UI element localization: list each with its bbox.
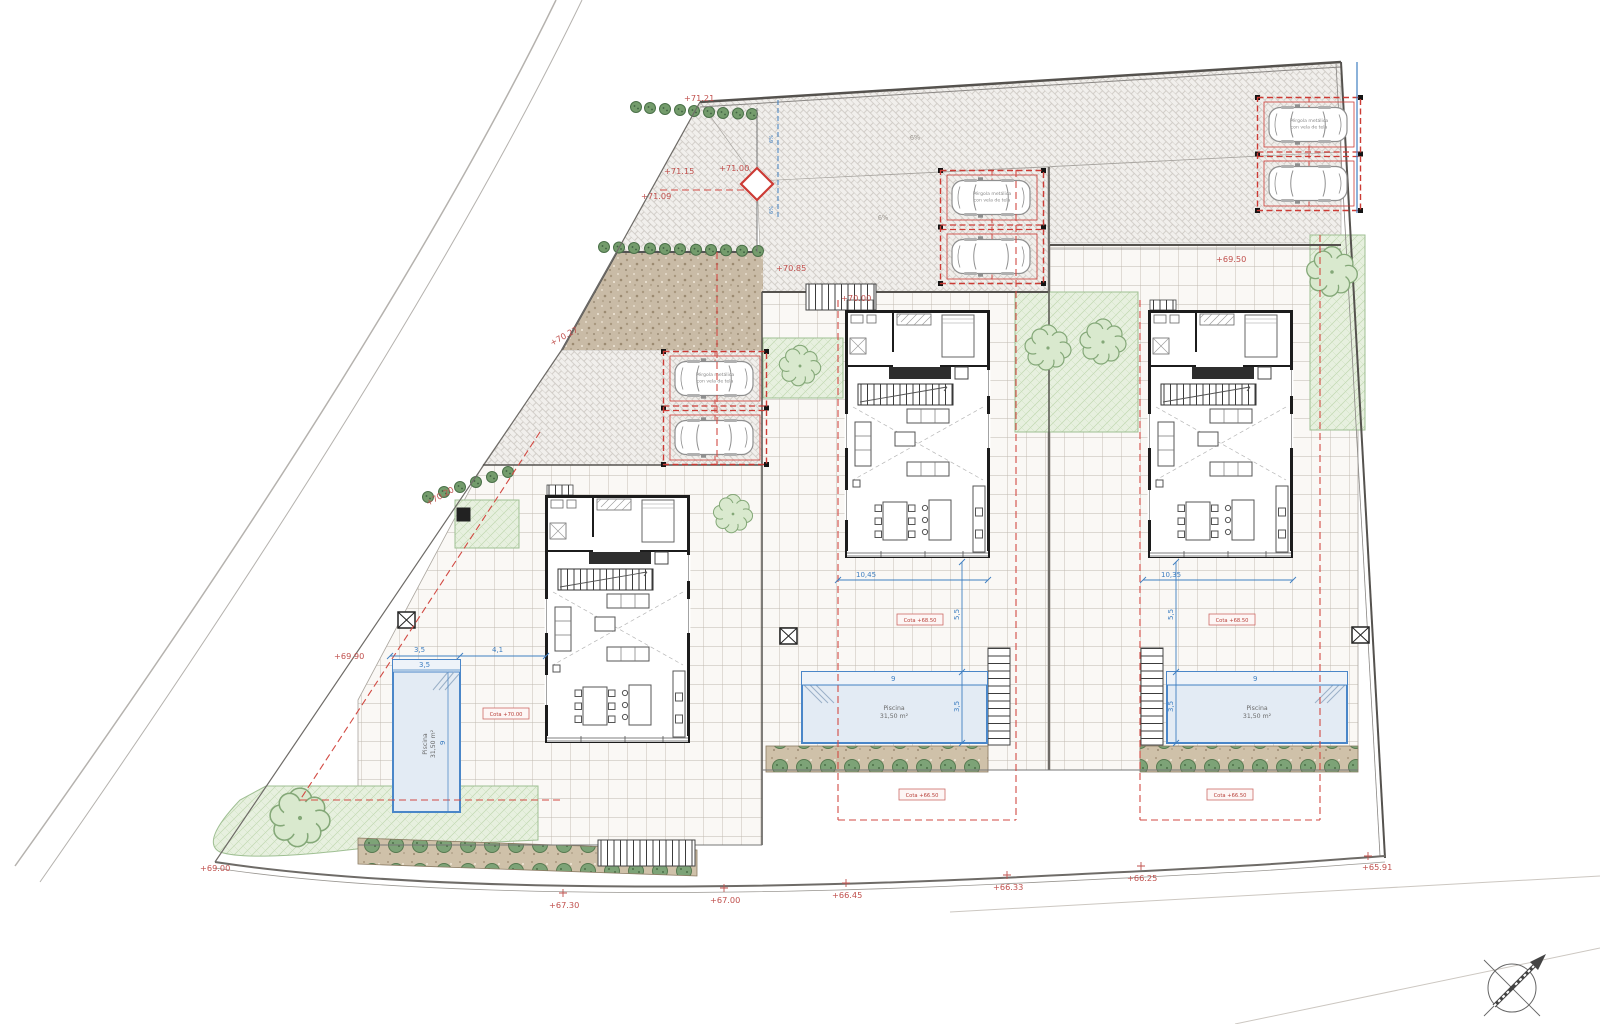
site-plan-canvas: Pérgola metálica con vela de tela — [0, 0, 1600, 1024]
villa-center — [845, 312, 991, 558]
dim-label: 3,5 — [1167, 701, 1175, 712]
dim-label: 9 — [1253, 675, 1257, 683]
dim-label: 9 — [891, 675, 895, 683]
elevation-label: +66.45 — [832, 890, 862, 900]
dim-label: 5,5 — [953, 609, 961, 620]
pool-label-line1: Piscina — [883, 705, 905, 712]
elevation-label: +71.00 — [719, 163, 749, 173]
dim-label: 9 — [439, 741, 447, 745]
dim-label: 10,35 — [1161, 571, 1181, 579]
elevation-label: +71.21 — [684, 93, 714, 103]
slope-label-blue: 6% — [769, 206, 775, 214]
slope-label: 6% — [910, 133, 921, 142]
pool-label-line2: 31,50 m² — [880, 713, 909, 720]
dim-label: 10,45 — [856, 571, 876, 579]
elevation-label: +69.00 — [200, 863, 230, 873]
elevation-label: +70.00 — [841, 293, 871, 303]
slope-label: 6% — [878, 213, 889, 222]
elevation-label: +69.50 — [1216, 254, 1246, 264]
level-tag: Cota +66.50 — [906, 793, 939, 799]
elevation-label: +69.90 — [334, 651, 364, 661]
elevation-label: +71.09 — [641, 191, 671, 201]
dim-label: 5,5 — [1167, 609, 1175, 620]
pool-label-line2: 31,50 m² — [430, 729, 437, 758]
villa-east — [1148, 312, 1294, 558]
elevation-label: +65.91 — [1362, 862, 1392, 872]
elevation-label: +67.00 — [710, 895, 740, 905]
level-tag: Cota +70.00 — [490, 712, 523, 718]
level-tag: Cota +66.50 — [1214, 793, 1247, 799]
level-tag: Cota +68.50 — [1216, 618, 1249, 624]
villa-west — [545, 497, 691, 743]
pool-label-line1: Piscina — [422, 733, 429, 755]
compass-north-icon — [1484, 954, 1546, 1016]
dim-label: 3,5 — [414, 646, 425, 654]
dim-label: 3,5 — [953, 701, 961, 712]
dim-label: 3,5 — [419, 661, 430, 669]
pool-label-line1: Piscina — [1246, 705, 1268, 712]
gravel-bed — [562, 252, 763, 350]
dim-label: 4,1 — [492, 646, 503, 654]
slope-label-blue: 6% — [769, 135, 775, 143]
elevation-label: +67.30 — [549, 900, 579, 910]
elevation-label: +66.25 — [1127, 873, 1157, 883]
street-lines-southeast — [950, 876, 1600, 1024]
elevation-label: +70.85 — [776, 263, 806, 273]
level-tag: Cota +68.50 — [904, 618, 937, 624]
elevation-label: +71.15 — [664, 166, 694, 176]
pool-label-line2: 31,50 m² — [1243, 713, 1272, 720]
pool-west: Piscina 31,50 m² — [393, 660, 460, 812]
elevation-label: +66.33 — [993, 882, 1023, 892]
